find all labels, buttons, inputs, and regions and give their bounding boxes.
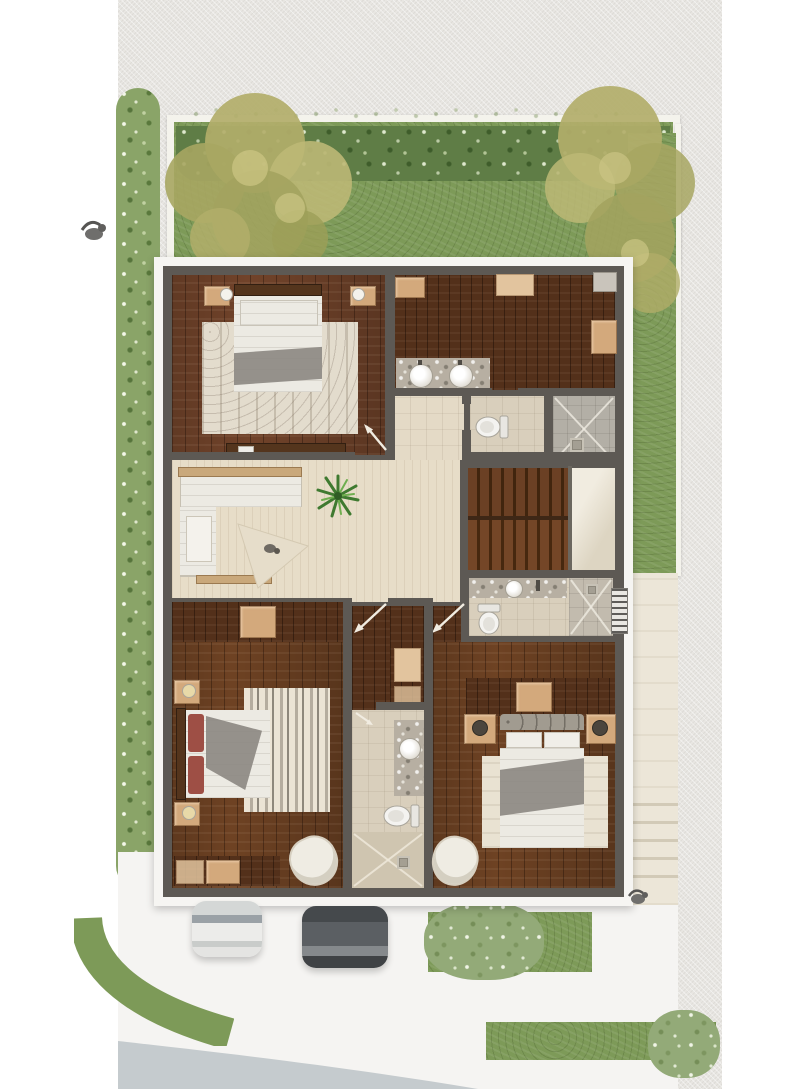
bath2-faucet xyxy=(536,580,540,591)
closet-box-side xyxy=(591,320,617,354)
plant xyxy=(314,472,362,520)
stairs-upper-flight xyxy=(468,468,568,516)
bath3-sink xyxy=(399,738,421,760)
vanity-sink-left xyxy=(409,364,433,388)
toilet-understairs xyxy=(474,602,504,636)
bird-left-icon xyxy=(74,212,114,248)
stair-landing xyxy=(572,468,615,573)
shower-understairs-drain xyxy=(586,584,598,596)
bedroom-right-lamp-right xyxy=(592,720,608,736)
bedroom-left-lamp-top xyxy=(182,684,196,698)
bedroom-left-closet-panel-2 xyxy=(206,860,240,884)
master-blanket xyxy=(234,347,322,385)
sofa-pillow xyxy=(186,516,212,562)
wall-closet-bath-a xyxy=(394,388,492,396)
side-walkway xyxy=(628,573,678,788)
wall-bath3-top-b xyxy=(376,702,433,710)
wall-bathrow-bottom xyxy=(462,452,622,462)
white-car xyxy=(192,901,262,957)
door-arrow-bedroom-right xyxy=(428,600,468,638)
wall-stairs-left xyxy=(460,460,468,575)
master-headboard xyxy=(234,284,322,296)
olive-tree-left xyxy=(160,88,360,283)
bedroom-left-lamp-bottom xyxy=(182,806,196,820)
bedroom-left-pillow-1 xyxy=(188,714,204,752)
shower-middle-drain xyxy=(397,856,410,869)
wall-closet-bath-b xyxy=(518,388,622,396)
triangular-rug xyxy=(234,516,312,592)
wall-bath3-top-a xyxy=(343,702,352,710)
bedroom-right-pillow-1 xyxy=(506,732,542,748)
bedroom-left-headboard xyxy=(176,708,186,800)
bedroom-left-pillow-2 xyxy=(188,756,204,794)
sofa-seat-top xyxy=(180,477,302,507)
sofa-back-rail xyxy=(178,467,302,477)
bath2-sink xyxy=(505,580,523,598)
closet-box-2 xyxy=(496,274,534,296)
closet-box-3 xyxy=(593,272,617,292)
stairs-lower-flight xyxy=(468,520,568,570)
dark-car xyxy=(302,906,388,968)
closet-box-1 xyxy=(395,277,425,298)
bedroom-left-closet-panel-1 xyxy=(176,860,204,884)
wardrobe-left-tan-panel xyxy=(240,606,276,638)
exterior-steps xyxy=(628,788,678,880)
toilet-top xyxy=(474,412,510,442)
wall-bath2-top xyxy=(460,570,622,578)
wall-vertical-left xyxy=(343,598,352,888)
front-shrubs-2 xyxy=(648,1010,720,1078)
wall-hall-bath-a xyxy=(462,396,471,404)
door-arrow-bathroom-middle xyxy=(353,710,377,730)
utility-louver-unit xyxy=(611,588,628,634)
door-arrow-bedroom-left xyxy=(350,600,390,638)
bedroom-right-headboard xyxy=(500,714,584,730)
vanity-sink-right xyxy=(449,364,473,388)
hallway-floor xyxy=(394,390,464,462)
master-lamp-right xyxy=(352,288,365,301)
vanity-faucet-right xyxy=(458,360,462,365)
shower-middle-glass xyxy=(352,832,424,888)
bedroom-right-closet-panel xyxy=(516,682,552,712)
master-pillows xyxy=(240,300,318,326)
shower-top-drain xyxy=(570,438,584,452)
master-lamp-left xyxy=(220,288,233,301)
bedroom-right-lamp-left xyxy=(472,720,488,736)
floor-plan-scene xyxy=(0,0,800,1089)
master-door-arrow xyxy=(360,418,390,454)
bird-right-icon xyxy=(624,884,654,910)
pet-dog-head xyxy=(274,548,280,554)
vanity-faucet-left xyxy=(418,360,422,365)
bedroom-right-pillow-2 xyxy=(544,732,580,748)
linen-closet-shelf-1 xyxy=(394,648,421,682)
wall-vertical-right xyxy=(424,598,433,888)
front-shrubs-1 xyxy=(424,902,544,980)
toilet-middle xyxy=(381,802,421,830)
